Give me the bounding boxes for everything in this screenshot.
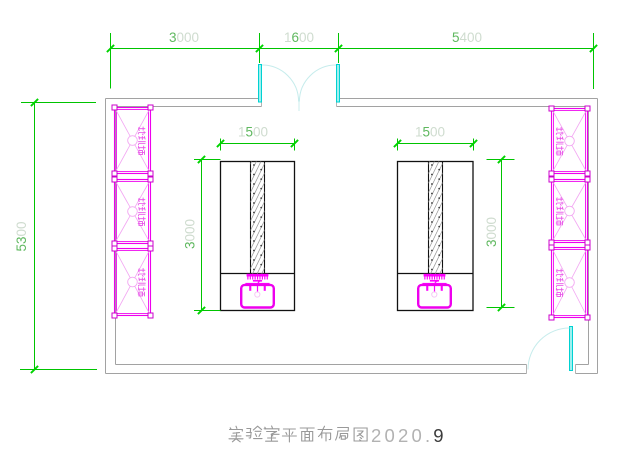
svg-text:2020.9: 2020.9 — [371, 425, 447, 446]
svg-text:1500: 1500 — [415, 125, 445, 140]
svg-text:1600: 1600 — [284, 30, 314, 45]
svg-text:3000: 3000 — [484, 217, 499, 247]
svg-text:5400: 5400 — [452, 30, 482, 45]
svg-text:5300: 5300 — [14, 221, 29, 251]
svg-text:3000: 3000 — [183, 219, 198, 249]
svg-text:3000: 3000 — [169, 30, 199, 45]
svg-text:1500: 1500 — [238, 125, 268, 140]
